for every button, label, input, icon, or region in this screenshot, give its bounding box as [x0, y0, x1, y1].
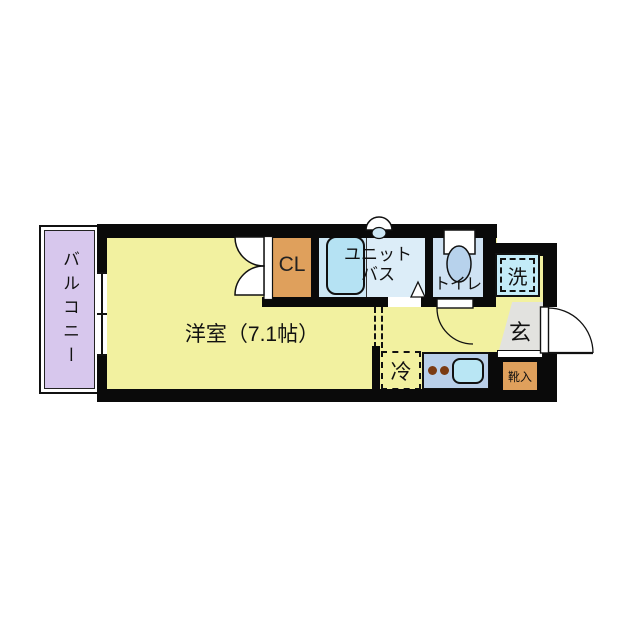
floorplan: バルコニー CL 冷 洗 靴入	[0, 0, 640, 640]
entrance-door-opening	[543, 307, 557, 353]
main-room-label: 洋室（7.1帖）	[152, 318, 352, 348]
washing-machine-space: 洗	[495, 253, 540, 297]
bath-door-opening	[388, 297, 421, 307]
wall	[489, 352, 497, 393]
entrance-label: 玄	[509, 315, 531, 347]
stove-burner-icon	[428, 366, 437, 375]
shoe-cabinet-label: 靴入	[508, 368, 532, 385]
closet: CL	[272, 231, 312, 298]
kitchen-sink-icon	[452, 358, 484, 384]
refrigerator-space: 冷	[381, 351, 421, 390]
washer-label: 洗	[508, 261, 528, 290]
kitchen-boundary-dashed-line	[381, 307, 383, 348]
unit-bath-label: ユニット バス	[324, 245, 432, 285]
toilet-label: トイレ	[429, 270, 487, 294]
balcony: バルコニー	[44, 230, 95, 389]
unit-bath-label-line1: ユニット	[344, 245, 412, 264]
wall	[97, 224, 497, 238]
stove-burner-icon	[440, 366, 449, 375]
balcony-label: バルコニー	[57, 250, 82, 370]
wall	[372, 346, 380, 390]
shoe-cabinet: 靴入	[497, 357, 543, 394]
wall	[311, 224, 319, 307]
kitchen-boundary-dashed-line	[374, 307, 376, 348]
window-sash-line	[101, 272, 103, 356]
refrigerator-label: 冷	[391, 356, 412, 386]
unit-bath-label-line2: バス	[361, 265, 395, 284]
wall	[97, 389, 557, 402]
closet-label: CL	[279, 253, 306, 277]
wall	[262, 297, 496, 307]
shoe-cabinet-body: 靴入	[503, 362, 537, 390]
